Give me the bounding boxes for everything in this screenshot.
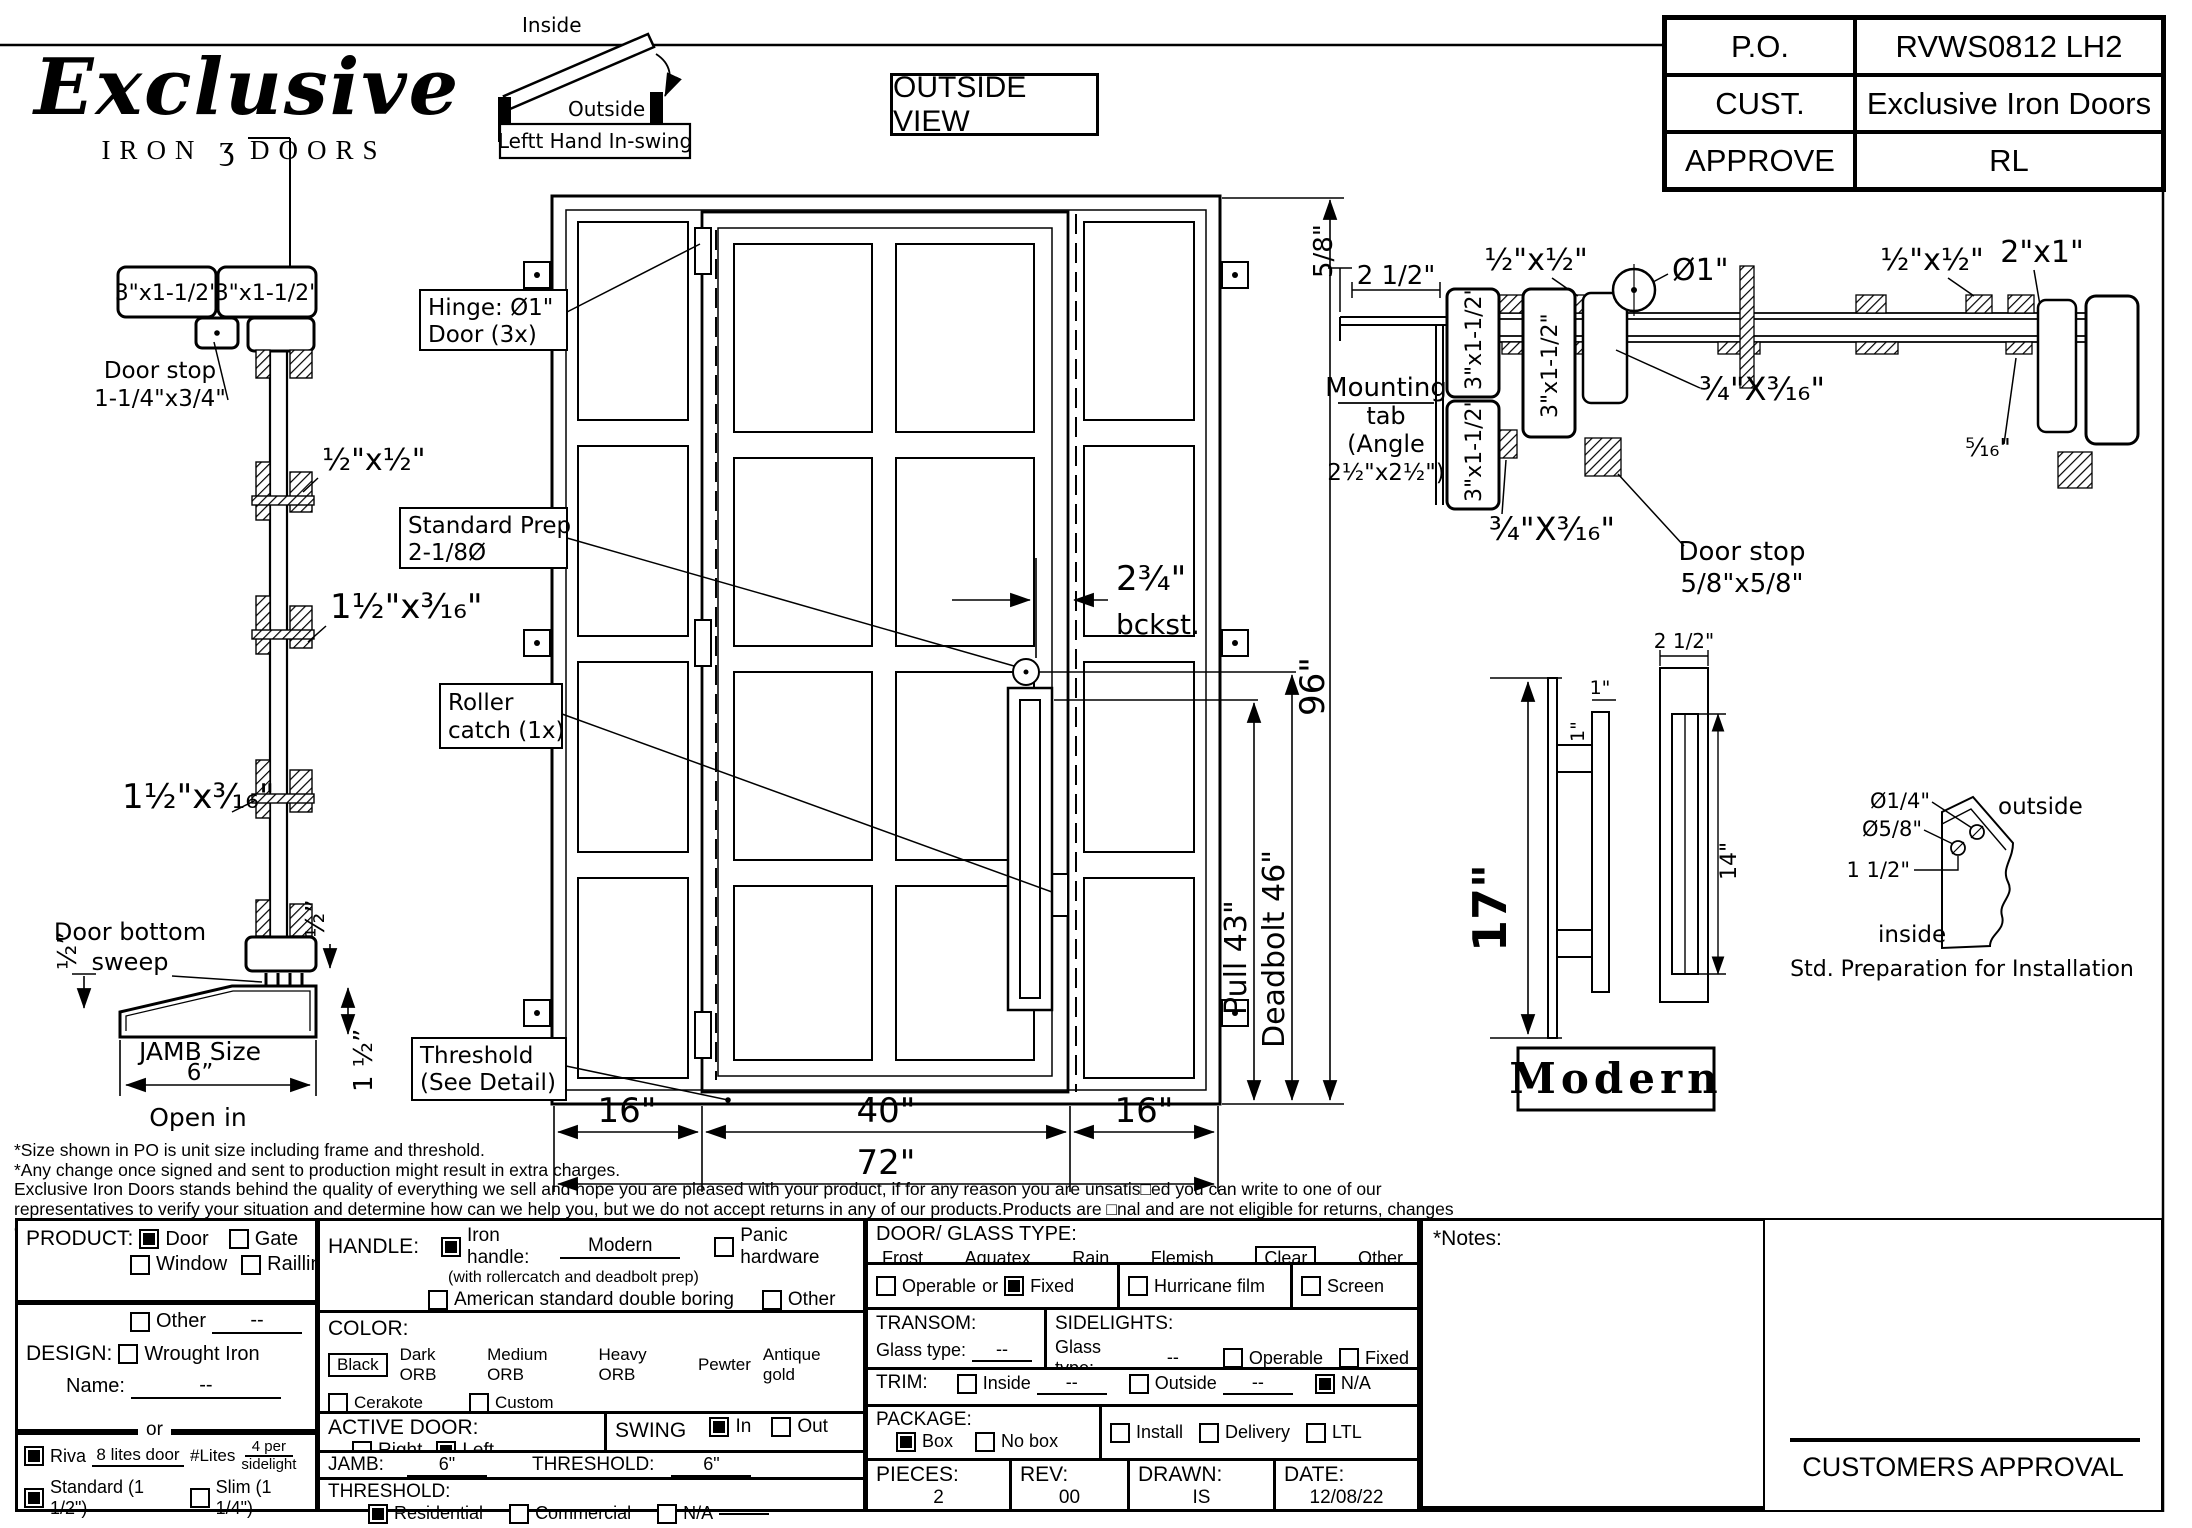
open-in-label: Open in [149, 1103, 247, 1132]
approve-value: RL [1855, 132, 2163, 189]
right-sidelight [1084, 222, 1194, 1078]
dim-half-half: ½"x½" [322, 443, 426, 478]
pieces-cell: PIECES: 2 [865, 1458, 1012, 1512]
package-install: Install [1136, 1422, 1183, 1443]
checkbox-handle-other[interactable] [762, 1290, 782, 1310]
jamb-section: JAMB: 6" THRESHOLD: 6" [317, 1450, 866, 1480]
plan-half-half-a: ½"x½" [1484, 243, 1588, 278]
dim-96: 96" [1293, 657, 1333, 716]
cust-label: CUST. [1665, 75, 1855, 132]
handle-iron-note: (with rollercatch and deadbolt prep) [448, 1269, 855, 1287]
prep-callout-2: 2-1/8Ø [408, 540, 486, 566]
swing-caption: Leftt Hand In-swing [498, 129, 692, 153]
po-value: RVWS0812 LH2 [1855, 18, 2163, 75]
checkbox-railing[interactable] [241, 1255, 261, 1275]
dim-half-left: ½” [53, 931, 83, 970]
dim-16-left: 16" [598, 1091, 657, 1131]
dim-half-right: ½” [301, 899, 331, 938]
active-door-section: ACTIVE DOOR: Right Left [317, 1411, 607, 1453]
operable-or: or [982, 1276, 998, 1297]
operable-fixed-cell: Operable or Fixed [865, 1262, 1120, 1310]
checkbox-na-threshold[interactable] [657, 1504, 677, 1524]
threshold-profile [120, 986, 316, 1037]
pull-two-half: 2 1/2" [1654, 629, 1714, 653]
po-label: P.O. [1665, 18, 1855, 75]
sidelights-operable: Operable [1249, 1348, 1323, 1369]
door-stop-label-2: 1-1/4"x3/4" [94, 386, 226, 412]
prep-detail: Ø1/4" Ø5/8" 1 1/2" outside inside Std. P… [1790, 789, 2134, 982]
operable-label: Operable [902, 1276, 976, 1297]
jamb-hatch-clusters [252, 350, 314, 936]
bckst-label: bckst. [1116, 608, 1200, 641]
checkbox-door[interactable] [139, 1229, 159, 1249]
swing-label: SWING [615, 1419, 686, 1442]
handle-panic: Panic hardware [740, 1225, 855, 1269]
color-heavy-orb[interactable]: Heavy ORB [599, 1345, 686, 1385]
product-gate: Gate [255, 1228, 298, 1251]
date-cell: DATE: 12/08/22 [1273, 1458, 1420, 1512]
plan-hinge-jamb [1583, 293, 1627, 403]
checkbox-gate[interactable] [229, 1229, 249, 1249]
threshold-section: THRESHOLD: Residential Commercial N/A [317, 1477, 866, 1512]
lites-label: #Lites [190, 1446, 235, 1466]
footnote-line: Exclusive Iron Doors stands behind the q… [14, 1180, 1454, 1200]
mounting-label-4: 2½"x2½") [1327, 460, 1445, 486]
screen-cell: Screen [1290, 1262, 1420, 1310]
package-box: Box [922, 1431, 953, 1452]
sweep-label-2: sweep [92, 948, 169, 976]
mounting-label-2: tab [1366, 402, 1405, 430]
pull-handle-bar [1020, 700, 1040, 998]
color-black[interactable]: Black [328, 1353, 388, 1377]
plan-right-box-a [2038, 300, 2076, 432]
trim-na: N/A [1341, 1373, 1371, 1394]
jamb-threshold-value[interactable]: 6" [671, 1454, 751, 1477]
checkbox-trim-inside[interactable] [957, 1374, 977, 1394]
prep-callout-1: Standard Prep [408, 513, 571, 539]
footnote-line: representatives to verify your situation… [14, 1200, 1454, 1220]
cust-value: Exclusive Iron Doors [1855, 75, 2163, 132]
checkbox-custom[interactable] [469, 1393, 489, 1413]
swing-arc-arrow [656, 54, 670, 96]
notes-section: *Notes: [1420, 1218, 1766, 1512]
product-window: Window [156, 1253, 227, 1276]
plan-dia-one: Ø1" [1672, 253, 1729, 288]
product-label: PRODUCT: [26, 1227, 133, 1251]
threshold-callout-2: (See Detail) [420, 1070, 556, 1096]
swing-outside-label: Outside [568, 97, 645, 121]
checkbox-in[interactable] [709, 1417, 729, 1437]
checkbox-screen[interactable] [1301, 1276, 1321, 1296]
screen-label: Screen [1327, 1276, 1384, 1297]
swing-diagram: Inside Outside Leftt Hand In-swing [498, 13, 692, 158]
approve-label: APPROVE [1665, 132, 1855, 189]
plan-two-by-one: 2"x1" [2000, 235, 2084, 270]
product-other: Other [156, 1310, 206, 1333]
footnote-line: *Size shown in PO is unit size including… [14, 1141, 1454, 1161]
swing-section: SWING In Out [604, 1411, 866, 1453]
brand-logo-sub: IRON ʒ DOORS [34, 130, 454, 168]
checkbox-riva[interactable] [24, 1446, 44, 1466]
checkbox-slim[interactable] [190, 1488, 210, 1508]
design-or: or [138, 1419, 171, 1441]
package-nobox: No box [1001, 1431, 1058, 1452]
product-section: PRODUCT: Door Gate Window Railling [15, 1218, 318, 1303]
drawing-sheet: Inside Outside Leftt Hand In-swing 3"x1-… [0, 0, 2192, 1528]
package-delivery: Delivery [1225, 1422, 1290, 1443]
swing-inside-label: Inside [522, 13, 582, 37]
delivery-section: Install Delivery LTL [1099, 1404, 1420, 1461]
checkbox-ltl[interactable] [1306, 1423, 1326, 1443]
color-pewter[interactable]: Pewter [698, 1355, 751, 1375]
color-cerakote: Cerakote [354, 1393, 423, 1413]
jamb-label: JAMB: [328, 1454, 384, 1475]
door-elevation: Hinge: Ø1" Door (3x) Standard Prep 2-1/8… [400, 196, 1344, 1192]
left-jamb-section: 3"x1-1/2" 3"x1-1/2" Door stop 1-1/4"x3/4… [53, 138, 483, 1132]
prep-caption: Std. Preparation for Installation [1790, 957, 2134, 982]
lites-value-1[interactable]: 4 per [245, 1439, 293, 1457]
brand-logo: Exclusive IRON ʒ DOORS [34, 48, 460, 168]
checkbox-trim-outside[interactable] [1129, 1374, 1149, 1394]
design-section: Other -- DESIGN: Wrought Iron Name: -- [15, 1300, 318, 1432]
design-label: DESIGN: [26, 1342, 112, 1366]
door-stop-label-1: Door stop [104, 358, 216, 384]
dim-1half-b: 1½"x³⁄₁₆" [122, 777, 275, 817]
transom-glass-type: Glass type: [876, 1340, 966, 1361]
mounting-tabs [524, 262, 1248, 1026]
plan-five-eighths: 5/8" [1309, 224, 1339, 278]
plan-half-half-b: ½"x½" [1880, 243, 1984, 278]
plan-section: 5/8" 2 1/2" Mounting tab (Angle 2½"x2½")… [1309, 224, 2138, 599]
handle-american: American standard double boring [454, 1289, 734, 1311]
checkbox-standard[interactable] [24, 1488, 44, 1508]
color-label: COLOR: [328, 1317, 855, 1341]
checkbox-fixed[interactable] [1004, 1276, 1024, 1296]
glass-type-section: DOOR/ GLASS TYPE: Frost Aquatex Rain Fle… [865, 1218, 1420, 1265]
threshold-na: N/A [683, 1503, 713, 1524]
color-antique-gold[interactable]: Antique gold [763, 1345, 855, 1385]
checkbox-window[interactable] [130, 1255, 150, 1275]
callouts: Hinge: Ø1" Door (3x) Standard Prep 2-1/8… [400, 244, 1052, 1103]
lites-value-2: sidelight [241, 1456, 296, 1473]
package-section: PACKAGE: Box No box [865, 1404, 1102, 1461]
approval-label: CUSTOMERS APPROVAL [1765, 1452, 2161, 1483]
pull-handle-detail: 17" 1" 1" 2 1/2" 14" Modern [1463, 629, 1742, 1110]
checkbox-wrought-iron[interactable] [118, 1344, 138, 1364]
pull-1b: 1" [1590, 677, 1611, 699]
plan-door-stop-1: Door stop [1679, 537, 1806, 567]
roller-catch [1052, 874, 1068, 916]
drawn-value[interactable]: IS [1162, 1487, 1242, 1511]
threshold-callout-1: Threshold [419, 1043, 533, 1069]
checkbox-commercial[interactable] [509, 1504, 529, 1524]
color-medium-orb[interactable]: Medium ORB [487, 1345, 586, 1385]
head-box-b-label: 3"x1-1/2" [215, 281, 320, 306]
plan-three-quarter-b: ¾"X³⁄₁₆" [1489, 510, 1615, 548]
jamb-threshold-label: THRESHOLD: [532, 1454, 654, 1475]
design-name-value[interactable]: -- [131, 1374, 281, 1399]
product-door: Door [165, 1228, 208, 1251]
checkbox-nobox[interactable] [975, 1432, 995, 1452]
handle-section: HANDLE: Iron handle: Modern Panic hardwa… [317, 1218, 866, 1313]
jamb-size-value: 6” [187, 1060, 214, 1086]
threshold-label: THRESHOLD: [328, 1481, 450, 1502]
design-name-label: Name: [66, 1375, 125, 1398]
prep-outside: outside [1998, 794, 2083, 820]
rev-label: REV: [1020, 1463, 1068, 1486]
color-custom: Custom [495, 1393, 554, 1413]
brand-logo-script: Exclusive [34, 48, 460, 128]
dim-40: 40" [857, 1091, 916, 1131]
roller-callout-2: catch (1x) [448, 718, 564, 744]
active-door-label: ACTIVE DOOR: [328, 1416, 479, 1439]
modern-label: Modern [1509, 1054, 1722, 1103]
checkbox-sl-fixed[interactable] [1339, 1348, 1359, 1368]
checkbox-sl-operable[interactable] [1223, 1348, 1243, 1368]
checkbox-cerakote[interactable] [328, 1393, 348, 1413]
handle-label: HANDLE: [328, 1235, 419, 1259]
date-label: DATE: [1284, 1463, 1344, 1486]
bckst-value: 2¾" [1116, 559, 1186, 599]
rev-cell: REV: 00 [1009, 1458, 1130, 1512]
sidelights-fixed: Fixed [1365, 1348, 1409, 1369]
lites-riva: Riva [50, 1446, 86, 1467]
checkbox-residential[interactable] [368, 1504, 388, 1524]
checkbox-install[interactable] [1110, 1423, 1130, 1443]
head-box-a-label: 3"x1-1/2" [115, 281, 220, 306]
pieces-label: PIECES: [876, 1463, 959, 1486]
checkbox-iron-handle[interactable] [441, 1237, 461, 1257]
door-bottom-profile [246, 937, 316, 971]
handle-other: Other [788, 1289, 836, 1311]
hinge-callout-2: Door (3x) [428, 322, 537, 348]
left-sidelight [578, 222, 688, 1078]
pull-14: 14" [1717, 842, 1742, 880]
plan-two-half: 2 1/2" [1357, 261, 1436, 291]
trim-outside-value[interactable]: -- [1223, 1372, 1293, 1395]
pieces-value[interactable]: 2 [904, 1487, 974, 1511]
handle-iron-value[interactable]: Modern [560, 1235, 680, 1259]
pull-1a: 1" [1567, 721, 1589, 742]
checkbox-operable[interactable] [876, 1276, 896, 1296]
dim-deadbolt: Deadbolt 46" [1257, 850, 1292, 1048]
drawn-label: DRAWN: [1138, 1463, 1222, 1486]
brand-iron: IRON [101, 135, 203, 165]
plan-jamb-box-c-label: 3"x1-1/2" [1538, 313, 1563, 418]
plan-jamb-box-a-label: 3"x1-1/2" [1462, 285, 1487, 390]
hurricane-label: Hurricane film [1154, 1276, 1265, 1297]
checkbox-panic[interactable] [714, 1237, 734, 1257]
rev-value[interactable]: 00 [1035, 1487, 1105, 1511]
active-door-leaf [695, 212, 1076, 1092]
lites-section: or Riva 8 lites door #Lites 4 per sideli… [15, 1430, 318, 1512]
dim-1half-a: 1½"x³⁄₁₆" [330, 587, 483, 627]
approval-section: CUSTOMERS APPROVAL [1763, 1218, 2163, 1512]
trim-outside: Outside [1155, 1373, 1217, 1394]
footnote-line: *Any change once signed and sent to prod… [14, 1161, 1454, 1181]
dim-1half-right: 1 ½” [349, 1029, 379, 1092]
trim-inside: Inside [983, 1373, 1031, 1394]
sidelights-label: SIDELIGHTS: [1055, 1313, 1409, 1335]
trim-label: TRIM: [876, 1372, 928, 1393]
glass-type-label: DOOR/ GLASS TYPE: [876, 1223, 1409, 1246]
transom-value[interactable]: -- [972, 1339, 1032, 1362]
trim-section: TRIM: Inside -- Outside -- N/A [865, 1367, 1420, 1407]
checkbox-trim-na[interactable] [1315, 1374, 1335, 1394]
checkbox-box[interactable] [896, 1432, 916, 1452]
package-label: PACKAGE: [876, 1409, 1091, 1431]
plan-right-box-b [2086, 296, 2138, 444]
checkbox-product-other[interactable] [130, 1312, 150, 1332]
swing-in: In [735, 1416, 751, 1438]
brand-scroll-icon: ʒ [219, 130, 234, 167]
po-table: P.O. RVWS0812 LH2 CUST. Exclusive Iron D… [1662, 15, 2166, 192]
color-dark-orb[interactable]: Dark ORB [400, 1345, 476, 1385]
design-wrought: Wrought Iron [144, 1343, 259, 1366]
brand-doors: DOORS [250, 135, 387, 165]
color-section: COLOR: Black Dark ORB Medium ORB Heavy O… [317, 1310, 866, 1414]
signature-line[interactable] [1790, 1438, 2140, 1442]
hinge-callout-1: Hinge: Ø1" [428, 295, 553, 321]
prep-dia-quarter: Ø1/4" [1870, 789, 1930, 813]
date-value[interactable]: 12/08/22 [1292, 1487, 1402, 1511]
prep-one-half: 1 1/2" [1847, 858, 1911, 882]
lites-slim: Slim (1 1/4") [216, 1477, 309, 1519]
checkbox-out[interactable] [771, 1417, 791, 1437]
checkbox-delivery[interactable] [1199, 1423, 1219, 1443]
pull-17: 17" [1463, 864, 1517, 952]
threshold-residential: Residential [394, 1503, 483, 1524]
dim-16-right: 16" [1115, 1091, 1174, 1131]
plan-five-sixteenths: ⁵⁄₁₆" [1965, 433, 2011, 462]
drawn-cell: DRAWN: IS [1127, 1458, 1276, 1512]
plan-jamb-box-b-label: 3"x1-1/2" [1462, 397, 1487, 502]
outside-view-label: OUTSIDE VIEW [890, 73, 1099, 136]
product-other-value[interactable]: -- [212, 1309, 302, 1334]
swing-out: Out [797, 1416, 828, 1438]
handle-iron: Iron handle: [467, 1225, 554, 1269]
mounting-label-3: (Angle [1347, 430, 1425, 458]
hurricane-cell: Hurricane film [1117, 1262, 1293, 1310]
dim-pull: Pull 43" [1219, 900, 1254, 1015]
roller-callout-1: Roller [448, 690, 514, 716]
mounting-label-1: Mounting [1325, 373, 1447, 403]
lites-riva-value[interactable]: 8 lites door [92, 1445, 184, 1467]
trim-inside-value[interactable]: -- [1037, 1372, 1107, 1395]
package-ltl: LTL [1332, 1422, 1362, 1443]
fixed-label: Fixed [1030, 1276, 1074, 1297]
plan-door-stop-2: 5/8"x5/8" [1681, 569, 1804, 599]
lites-standard: Standard (1 1/2") [50, 1477, 180, 1519]
sidelights-section: SIDELIGHTS: Glass type: -- Operable Fixe… [1044, 1307, 1420, 1370]
prep-dia-five-eighth: Ø5/8" [1862, 817, 1922, 841]
transom-section: TRANSOM: Glass type: -- [865, 1307, 1047, 1370]
threshold-commercial: Commercial [535, 1503, 631, 1524]
checkbox-hurricane[interactable] [1128, 1276, 1148, 1296]
plan-three-quarter-a: ¾"X³⁄₁₆" [1699, 370, 1825, 408]
jamb-value[interactable]: 6" [407, 1454, 487, 1477]
checkbox-american[interactable] [428, 1290, 448, 1310]
head-jamb-profile [248, 318, 314, 351]
prep-inside: inside [1878, 922, 1946, 948]
notes-label: *Notes: [1433, 1227, 1502, 1250]
transom-label: TRANSOM: [876, 1313, 1036, 1335]
